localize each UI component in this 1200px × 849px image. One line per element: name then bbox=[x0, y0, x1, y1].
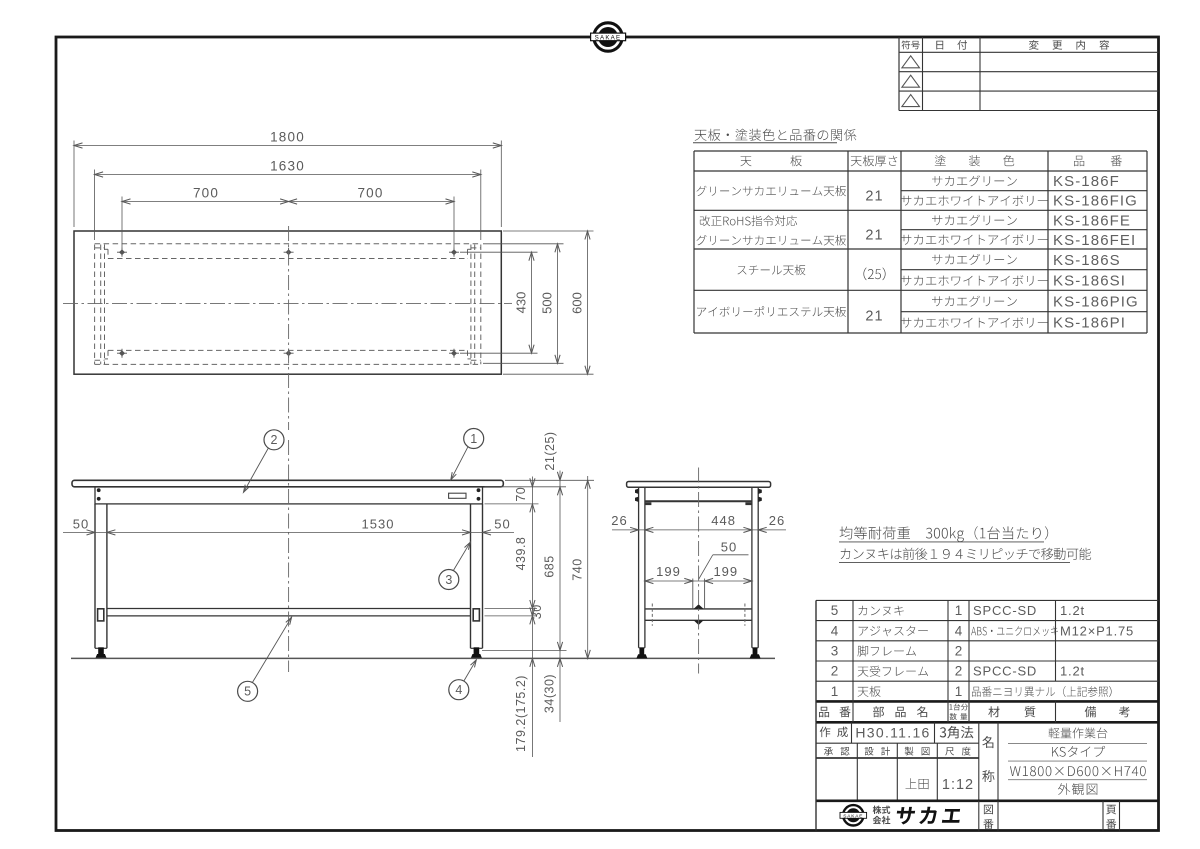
svg-text:KS-186F: KS-186F bbox=[1053, 173, 1120, 190]
svg-text:5: 5 bbox=[831, 603, 839, 618]
svg-text:26: 26 bbox=[769, 513, 785, 528]
svg-text:1: 1 bbox=[831, 684, 839, 699]
svg-text:199: 199 bbox=[713, 564, 738, 579]
svg-text:5: 5 bbox=[244, 685, 251, 699]
svg-text:SPCC-SD: SPCC-SD bbox=[973, 603, 1037, 618]
svg-text:1: 1 bbox=[955, 603, 963, 618]
svg-text:50: 50 bbox=[73, 517, 89, 532]
svg-text:KS-186SI: KS-186SI bbox=[1053, 273, 1126, 290]
svg-text:179.2(175.2): 179.2(175.2) bbox=[514, 675, 528, 752]
svg-text:70: 70 bbox=[514, 487, 528, 502]
svg-text:2: 2 bbox=[271, 433, 278, 447]
svg-text:700: 700 bbox=[193, 185, 219, 200]
svg-text:1:12: 1:12 bbox=[942, 777, 974, 793]
svg-text:2: 2 bbox=[955, 644, 963, 659]
svg-text:1800: 1800 bbox=[270, 129, 305, 144]
svg-text:448: 448 bbox=[711, 513, 736, 528]
svg-text:1: 1 bbox=[955, 684, 963, 699]
svg-text:2: 2 bbox=[831, 664, 839, 679]
svg-text:1630: 1630 bbox=[270, 158, 305, 173]
svg-text:M12×P1.75: M12×P1.75 bbox=[1060, 623, 1134, 638]
svg-text:50: 50 bbox=[494, 517, 510, 532]
svg-text:26: 26 bbox=[611, 513, 627, 528]
svg-text:21(25): 21(25) bbox=[543, 431, 557, 470]
svg-text:30: 30 bbox=[530, 604, 544, 619]
svg-text:430: 430 bbox=[514, 292, 529, 314]
svg-text:700: 700 bbox=[357, 185, 383, 200]
svg-text:4: 4 bbox=[955, 623, 963, 638]
svg-text:1.2t: 1.2t bbox=[1060, 603, 1085, 618]
svg-text:KS-186FE: KS-186FE bbox=[1053, 212, 1131, 229]
svg-text:2: 2 bbox=[955, 664, 963, 679]
svg-text:1: 1 bbox=[470, 432, 477, 446]
svg-text:3: 3 bbox=[831, 644, 839, 659]
svg-text:439.8: 439.8 bbox=[514, 537, 528, 571]
svg-text:3: 3 bbox=[445, 573, 452, 587]
svg-text:4: 4 bbox=[831, 623, 839, 638]
svg-text:KS-186FIG: KS-186FIG bbox=[1053, 193, 1138, 210]
svg-text:600: 600 bbox=[570, 292, 585, 314]
svg-text:1530: 1530 bbox=[362, 517, 395, 532]
svg-text:21: 21 bbox=[865, 188, 883, 204]
svg-text:KS-186PIG: KS-186PIG bbox=[1053, 293, 1139, 310]
svg-text:KS-186S: KS-186S bbox=[1053, 252, 1121, 269]
svg-text:740: 740 bbox=[571, 558, 585, 580]
svg-text:21: 21 bbox=[865, 309, 883, 325]
svg-text:199: 199 bbox=[656, 564, 681, 579]
svg-text:H30.11.16: H30.11.16 bbox=[855, 724, 930, 740]
svg-text:21: 21 bbox=[865, 227, 883, 243]
svg-text:50: 50 bbox=[721, 540, 737, 555]
svg-text:SAKAE: SAKAE bbox=[843, 813, 863, 819]
svg-text:KS-186FEI: KS-186FEI bbox=[1053, 232, 1136, 249]
svg-text:KS-186PI: KS-186PI bbox=[1053, 315, 1126, 332]
svg-text:685: 685 bbox=[543, 555, 557, 577]
svg-text:34(30): 34(30) bbox=[542, 674, 556, 713]
svg-text:4: 4 bbox=[455, 683, 462, 697]
svg-text:500: 500 bbox=[540, 292, 555, 314]
svg-text:SAKAE: SAKAE bbox=[595, 35, 622, 42]
svg-text:1.2t: 1.2t bbox=[1060, 664, 1085, 679]
svg-text:SPCC-SD: SPCC-SD bbox=[973, 664, 1037, 679]
